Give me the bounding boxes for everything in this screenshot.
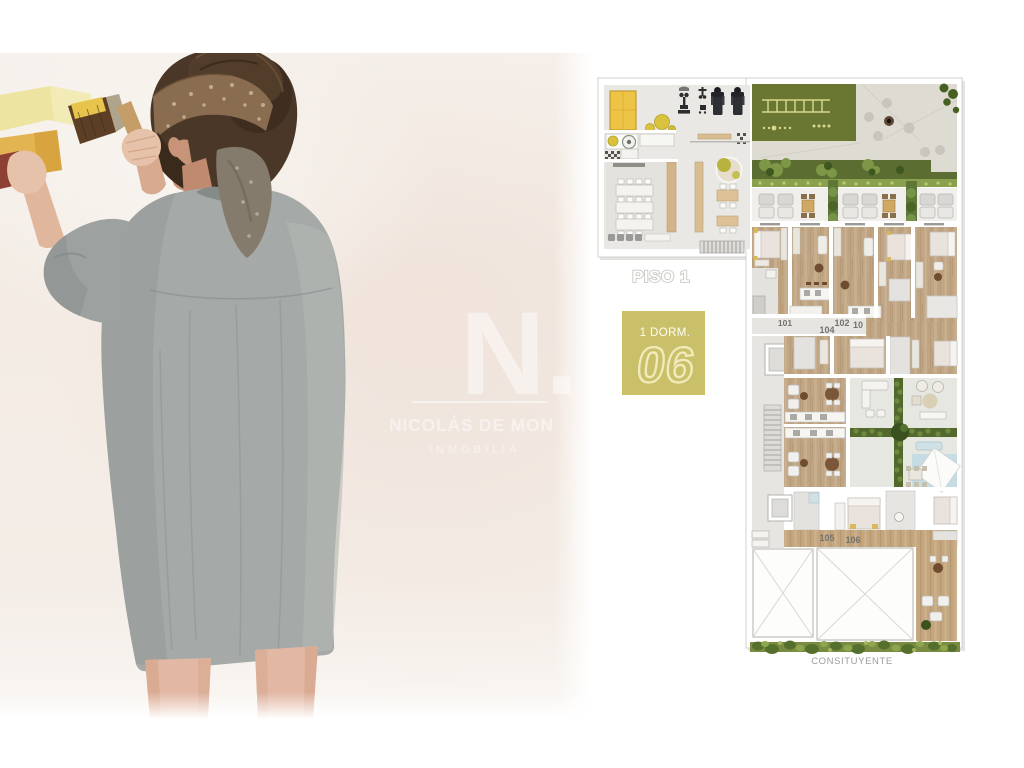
svg-text:105: 105 — [819, 533, 834, 543]
svg-text:INMOBILIA: INMOBILIA — [429, 444, 521, 456]
svg-text:10: 10 — [853, 320, 863, 330]
svg-text:104: 104 — [819, 325, 834, 335]
svg-text:N.: N. — [460, 288, 578, 420]
svg-text:102: 102 — [834, 318, 849, 328]
svg-text:NICOLÁS DE MON: NICOLÁS DE MON — [389, 414, 554, 435]
svg-text:CONSITUYENTE: CONSITUYENTE — [811, 656, 893, 667]
svg-text:106: 106 — [845, 535, 860, 545]
svg-text:101: 101 — [778, 318, 792, 328]
svg-text:PISO 1: PISO 1 — [632, 267, 690, 286]
svg-text:06: 06 — [634, 337, 699, 393]
